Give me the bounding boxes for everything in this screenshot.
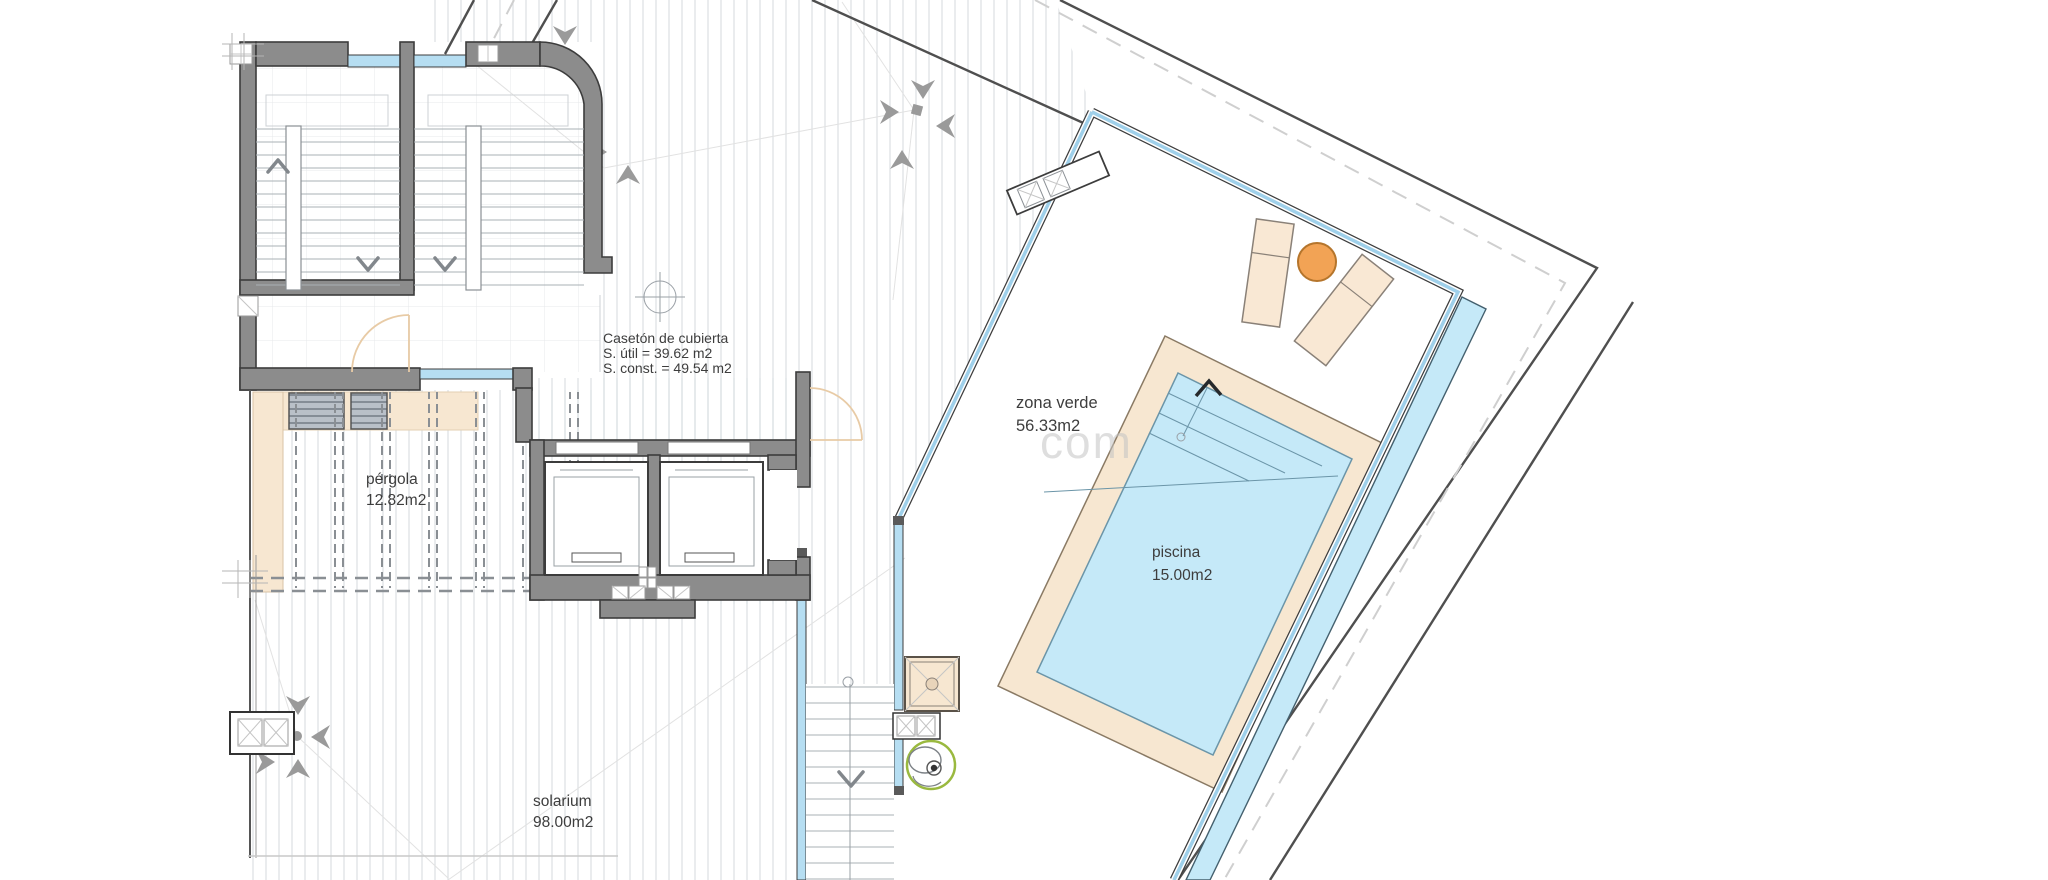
zona-verde-area: 56.33m2 <box>1016 417 1080 435</box>
stair-treads <box>256 125 400 290</box>
skylight-room <box>660 462 763 575</box>
skylight-room <box>545 462 648 575</box>
solarium-area: 98.00m2 <box>533 814 593 831</box>
caseton-label: Casetón de cubierta <box>603 330 729 346</box>
external-stair <box>806 677 894 880</box>
window <box>414 55 466 67</box>
solarium-deck <box>250 592 800 880</box>
south-wall <box>240 368 420 390</box>
alcove <box>770 470 797 560</box>
zona-verde-label: zona verde <box>1016 394 1098 412</box>
stair-rail <box>286 126 301 290</box>
stair-divider-wall <box>400 42 414 290</box>
floor-plan-page: com Casetón de cubierta S. útil = 39.62 … <box>0 0 2048 880</box>
caseton-area-const: S. const. = 49.54 m2 <box>603 360 732 376</box>
caseton-area-util: S. útil = 39.62 m2 <box>603 345 713 361</box>
pergola-area: 12.82m2 <box>366 492 426 509</box>
pergola-label: pérgola <box>366 471 418 488</box>
solarium-glass-wall <box>797 556 806 880</box>
piscina-label: piscina <box>1152 544 1201 561</box>
stair-rail <box>466 126 481 290</box>
west-wall <box>240 42 256 390</box>
floor-plan-drawing: com Casetón de cubierta S. útil = 39.62 … <box>0 0 2048 880</box>
piscina-area: 15.00m2 <box>1152 567 1212 584</box>
solarium-label: solarium <box>533 793 592 810</box>
side-table <box>1298 243 1336 281</box>
window <box>348 55 400 67</box>
window <box>420 369 513 379</box>
